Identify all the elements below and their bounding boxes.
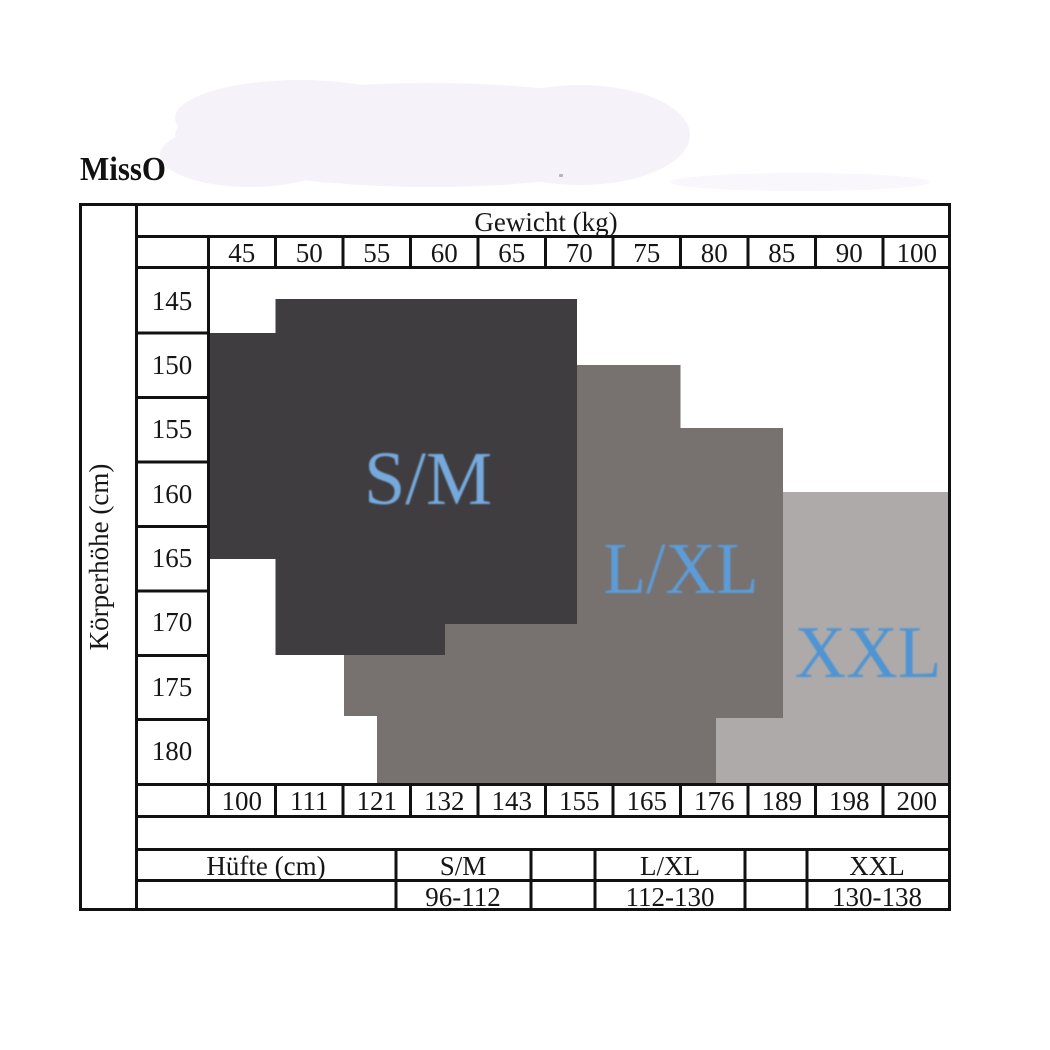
- svg-text:170: 170: [152, 607, 193, 637]
- svg-text:S/M: S/M: [440, 851, 487, 881]
- svg-text:175: 175: [152, 672, 193, 702]
- svg-text:155: 155: [559, 786, 600, 816]
- svg-text:MissO: MissO: [80, 151, 166, 188]
- svg-text:70: 70: [566, 238, 593, 268]
- svg-text:50: 50: [296, 238, 323, 268]
- svg-text:132: 132: [424, 786, 465, 816]
- svg-text:75: 75: [633, 238, 660, 268]
- svg-text:143: 143: [492, 786, 533, 816]
- svg-text:200: 200: [897, 786, 938, 816]
- svg-text:100: 100: [222, 786, 263, 816]
- svg-text:Körperhöhe (cm): Körperhöhe (cm): [84, 464, 114, 651]
- svg-text:180: 180: [152, 736, 193, 766]
- svg-text:L/XL: L/XL: [604, 528, 759, 609]
- svg-text:65: 65: [498, 238, 525, 268]
- svg-text:165: 165: [627, 786, 668, 816]
- svg-text:100: 100: [897, 238, 938, 268]
- svg-text:165: 165: [152, 543, 193, 573]
- svg-text:60: 60: [431, 238, 458, 268]
- svg-text:198: 198: [829, 786, 870, 816]
- svg-text:160: 160: [152, 479, 193, 509]
- svg-text:Hüfte (cm): Hüfte (cm): [206, 851, 325, 881]
- svg-text:Gewicht (kg): Gewicht (kg): [474, 207, 617, 237]
- svg-text:150: 150: [152, 350, 193, 380]
- svg-text:130-138: 130-138: [832, 882, 922, 912]
- svg-text:176: 176: [694, 786, 735, 816]
- svg-text:112-130: 112-130: [626, 882, 715, 912]
- svg-text:155: 155: [152, 414, 193, 444]
- svg-text:XXL: XXL: [795, 612, 942, 694]
- svg-text:96-112: 96-112: [425, 882, 501, 912]
- svg-text:XXL: XXL: [849, 851, 905, 881]
- svg-text:S/M: S/M: [364, 437, 492, 521]
- svg-text:45: 45: [228, 238, 255, 268]
- svg-text:90: 90: [836, 238, 863, 268]
- svg-text:L/XL: L/XL: [640, 851, 700, 881]
- svg-text:145: 145: [152, 286, 193, 316]
- svg-text:80: 80: [701, 238, 728, 268]
- svg-text:111: 111: [290, 786, 329, 816]
- svg-text:85: 85: [768, 238, 795, 268]
- svg-text:55: 55: [363, 238, 390, 268]
- svg-text:189: 189: [762, 786, 803, 816]
- svg-text:121: 121: [357, 786, 398, 816]
